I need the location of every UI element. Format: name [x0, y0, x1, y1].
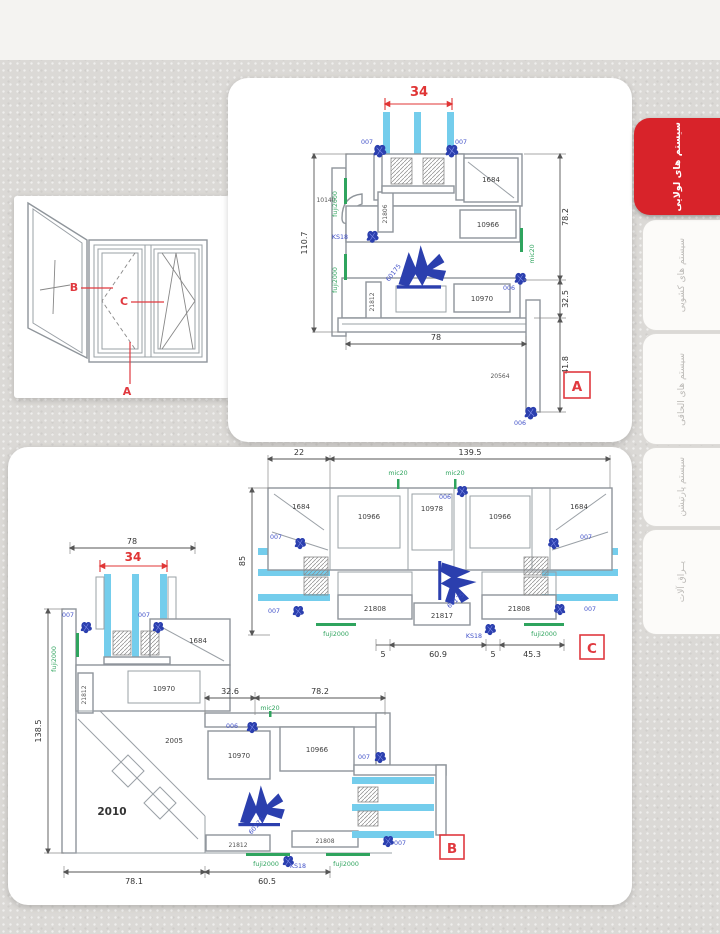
fitting-clip-icon: [293, 606, 304, 617]
part-006-bottom: 006: [514, 420, 526, 427]
c-top-dimensions: 22 139.5: [268, 448, 610, 491]
part-007-right: 007: [455, 139, 467, 146]
section-a-panel: 34: [228, 78, 632, 442]
b-side-dimension: 138.5: [34, 609, 64, 853]
dim-78-2: 78.2: [561, 208, 570, 226]
tab-hardware-label: یــراق آلات: [677, 561, 687, 602]
marker-b-label: B: [70, 281, 78, 294]
part-10966-left: 10966: [358, 513, 381, 521]
tab-hinged-systems-label: سیستم های لولایی: [672, 122, 683, 211]
dim-78-1: 78.1: [125, 877, 143, 886]
part-006: 006: [439, 494, 451, 501]
part-10966: 10966: [477, 221, 500, 229]
window-elevation-drawing: B C A: [14, 196, 230, 398]
dim-34-label: 34: [410, 85, 428, 100]
part-21806: 21806: [382, 204, 389, 223]
part-20564: 20564: [490, 373, 509, 380]
section-c-drawing: 22 139.5: [238, 448, 618, 659]
dim-32-5: 32.5: [561, 290, 570, 308]
c-side-dimension: 85: [238, 488, 270, 635]
part-007-tr: 007: [138, 612, 150, 619]
dim-78: 78: [431, 333, 441, 342]
part-ks18: KS18: [466, 633, 482, 640]
part-10966: 10966: [306, 746, 329, 754]
part-1684: 1684: [482, 176, 500, 184]
part-21808: 21808: [315, 838, 334, 845]
tab-hinged-systems[interactable]: سیستم های لولایی: [634, 118, 720, 215]
part-21808-left: 21808: [364, 605, 386, 613]
fitting-clip-icon: [383, 836, 394, 847]
sections-b-c-drawing: 22 139.5: [8, 447, 632, 905]
dim-138-5: 138.5: [34, 720, 43, 743]
catalog-page: B C A 34: [0, 0, 720, 934]
dim-60-9: 60.9: [429, 650, 447, 659]
section-a-badge: A: [564, 372, 590, 398]
c-bottom-dimensions: 5 60.9 5 45.3: [376, 639, 564, 659]
dim-22: 22: [294, 448, 304, 457]
part-fuji2000-b2: fuji2000: [333, 861, 359, 868]
part-ks18: KS18: [332, 234, 348, 241]
part-mic20: mic20: [260, 705, 279, 712]
section-c-badge-label: C: [587, 641, 597, 657]
tab-partition-system[interactable]: سیستم پارتیشن: [642, 447, 720, 527]
dim-45-3: 45.3: [523, 650, 541, 659]
part-mic20-left: mic20: [388, 470, 407, 477]
marker-a-label: A: [123, 385, 132, 398]
glass-dimension-34: 34: [385, 85, 452, 110]
dim-60-5: 60.5: [258, 877, 276, 886]
part-21808-right: 21808: [508, 605, 530, 613]
dim-78-2: 78.2: [311, 687, 329, 696]
part-21812: 21812: [369, 292, 376, 311]
dim-139-5: 139.5: [459, 448, 482, 457]
part-007-tr: 007: [580, 534, 592, 541]
fitting-clip-icon: [81, 622, 92, 633]
part-21812-vertical: 21812: [81, 685, 88, 704]
b-top-dimensions: 78 34: [70, 537, 195, 572]
part-007-bl: 007: [268, 608, 280, 615]
fitting-clip-icon: [525, 407, 538, 420]
part-007-left: 007: [361, 139, 373, 146]
tab-hardware[interactable]: یــراق آلات: [642, 529, 720, 635]
dim-78: 78: [127, 537, 137, 546]
b-mid-dimensions: 32.6 78.2: [205, 687, 385, 715]
sections-b-c-panel: 22 139.5: [8, 447, 632, 905]
marker-c-label: C: [120, 295, 128, 308]
part-006-right: 006: [503, 285, 515, 292]
part-007-tl: 007: [62, 612, 74, 619]
section-c-badge: C: [580, 635, 604, 659]
section-b-badge-label: B: [447, 841, 457, 857]
part-fuji2000-left: fuji2000: [323, 631, 349, 638]
part-10978: 10978: [421, 505, 443, 513]
tab-addon-systems-label: سیستم های الحاقی: [677, 353, 687, 426]
window-elevation-panel: B C A: [14, 196, 230, 398]
tab-sliding-systems-label: سیستم های کشویی: [677, 238, 687, 312]
part-mic20-right: mic20: [445, 470, 464, 477]
part-2005: 2005: [165, 737, 183, 745]
part-fuji2000-lower: fuji2000: [332, 267, 339, 293]
dim-5-right: 5: [490, 650, 495, 659]
part-1684-right: 1684: [570, 503, 588, 511]
part-1684-left: 1684: [292, 503, 310, 511]
part-fuji2000-right: fuji2000: [531, 631, 557, 638]
dim-110-7: 110.7: [300, 232, 309, 255]
dim-85: 85: [238, 556, 247, 566]
part-10970: 10970: [471, 295, 493, 303]
dim-34: 34: [125, 550, 142, 564]
dim-5-left: 5: [380, 650, 385, 659]
part-1684: 1684: [189, 637, 207, 645]
section-a-drawing: 34: [228, 78, 632, 442]
part-007-tl: 007: [270, 534, 282, 541]
section-a-badge-label: A: [572, 379, 583, 395]
b-side-glass: [352, 777, 434, 838]
part-007-r2: 007: [394, 840, 406, 847]
part-007-br: 007: [584, 606, 596, 613]
part-fuji2000-upper: fuji2000: [332, 191, 339, 217]
tab-sliding-systems[interactable]: سیستم های کشویی: [642, 219, 720, 331]
part-10970-top: 10970: [153, 685, 175, 693]
part-ks18: KS18: [290, 863, 306, 870]
dim-32-6: 32.6: [221, 687, 239, 696]
section-b-drawing: 78 34: [34, 537, 464, 886]
part-21817: 21817: [431, 612, 453, 620]
part-fuji2000-left: fuji2000: [51, 646, 58, 672]
window-frame: [89, 240, 207, 362]
part-10966-right: 10966: [489, 513, 512, 521]
part-mic20: mic20: [529, 244, 536, 263]
part-fuji2000-b1: fuji2000: [253, 861, 279, 868]
part-21812: 21812: [228, 842, 247, 849]
tab-partition-system-label: سیستم پارتیشن: [677, 457, 687, 517]
part-007-r1: 007: [358, 754, 370, 761]
part-2010: 2010: [97, 806, 126, 818]
tab-addon-systems[interactable]: سیستم های الحاقی: [642, 333, 720, 445]
part-006: 006: [226, 723, 238, 730]
section-b-badge: B: [440, 835, 464, 859]
fitting-clip-icon: [485, 624, 496, 635]
part-10970: 10970: [228, 752, 250, 760]
